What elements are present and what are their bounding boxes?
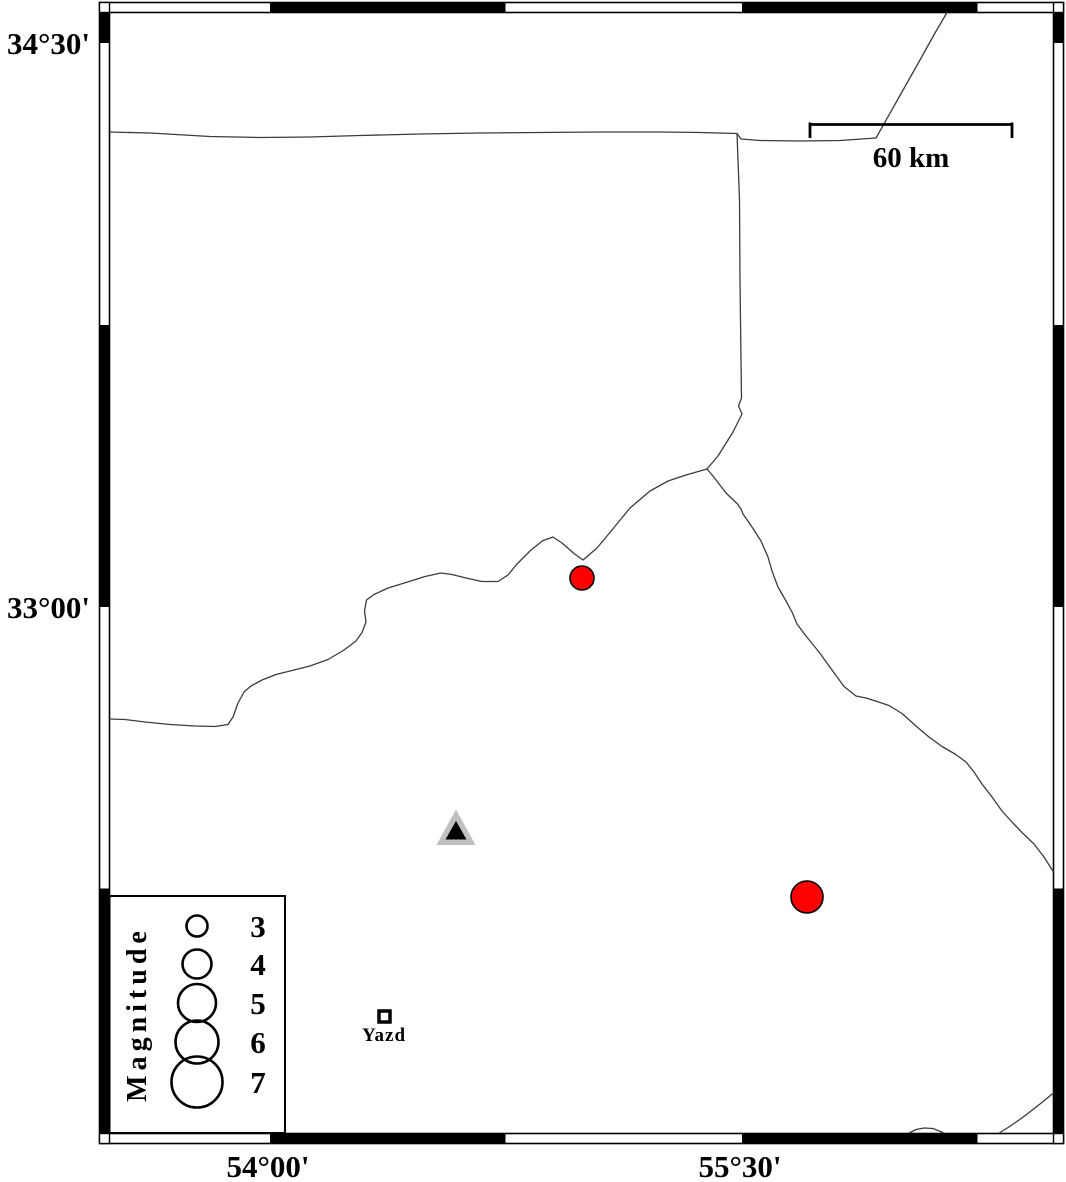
lat-label-top: 34°30' <box>7 26 90 61</box>
boundary-west <box>109 469 707 727</box>
frame-band-bottom-1 <box>270 1134 506 1144</box>
legend-title: Magnitude <box>122 926 153 1102</box>
frame-band-left-2 <box>100 325 110 607</box>
frame-band-right-3 <box>1054 889 1064 1134</box>
legend-label-m4: 4 <box>250 947 266 982</box>
boundary-north-horizontal <box>109 132 876 141</box>
boundary-south-bump <box>909 1128 943 1133</box>
earthquake-marker-2[interactable] <box>791 881 823 913</box>
map-canvas[interactable]: 60 km 34°30' 33°00' 54°00' 55°30' Yazd M… <box>0 0 1066 1182</box>
frame-corner-bottom-left <box>100 1134 110 1144</box>
frame-band-top-2 <box>742 3 978 13</box>
lon-label-left: 54°00' <box>226 1149 309 1182</box>
seismicity-map-figure: 60 km 34°30' 33°00' 54°00' 55°30' Yazd M… <box>0 0 1066 1182</box>
scale-bar: 60 km <box>810 123 1012 175</box>
legend-label-m6: 6 <box>250 1025 266 1060</box>
frame-band-right-2 <box>1054 325 1064 607</box>
legend-label-m5: 5 <box>250 986 266 1021</box>
frame-band-bottom-2 <box>742 1134 978 1144</box>
boundary-corner-southeast <box>1000 1093 1054 1133</box>
city-label: Yazd <box>362 1025 406 1046</box>
lat-label-mid: 33°00' <box>7 590 90 625</box>
scale-bar-bracket <box>810 123 1012 139</box>
earthquake-marker-1[interactable] <box>570 566 594 590</box>
city-marker-yazd[interactable]: Yazd <box>362 1011 406 1046</box>
earthquake-markers <box>570 566 823 913</box>
boundary-north-vertical <box>707 134 742 470</box>
station-marker[interactable] <box>437 810 476 846</box>
legend-label-m3: 3 <box>250 909 266 944</box>
scale-bar-label: 60 km <box>873 142 950 174</box>
lon-label-right: 55°30' <box>698 1149 781 1182</box>
frame-corner-top-left <box>100 3 110 13</box>
boundary-northeast-diagonal <box>876 13 947 139</box>
frame-band-left-3 <box>100 889 110 1134</box>
frame-band-right-1 <box>1054 13 1064 44</box>
city-square-icon <box>379 1011 390 1022</box>
magnitude-legend: Magnitude 3 4 5 6 7 <box>110 896 286 1133</box>
frame-corner-bottom-right <box>1054 1134 1064 1144</box>
frame-band-top-1 <box>270 3 506 13</box>
frame-corner-top-right <box>1054 3 1064 13</box>
frame-band-left-1 <box>100 13 110 44</box>
legend-label-m7: 7 <box>250 1065 266 1100</box>
boundary-southeast <box>707 469 1054 872</box>
